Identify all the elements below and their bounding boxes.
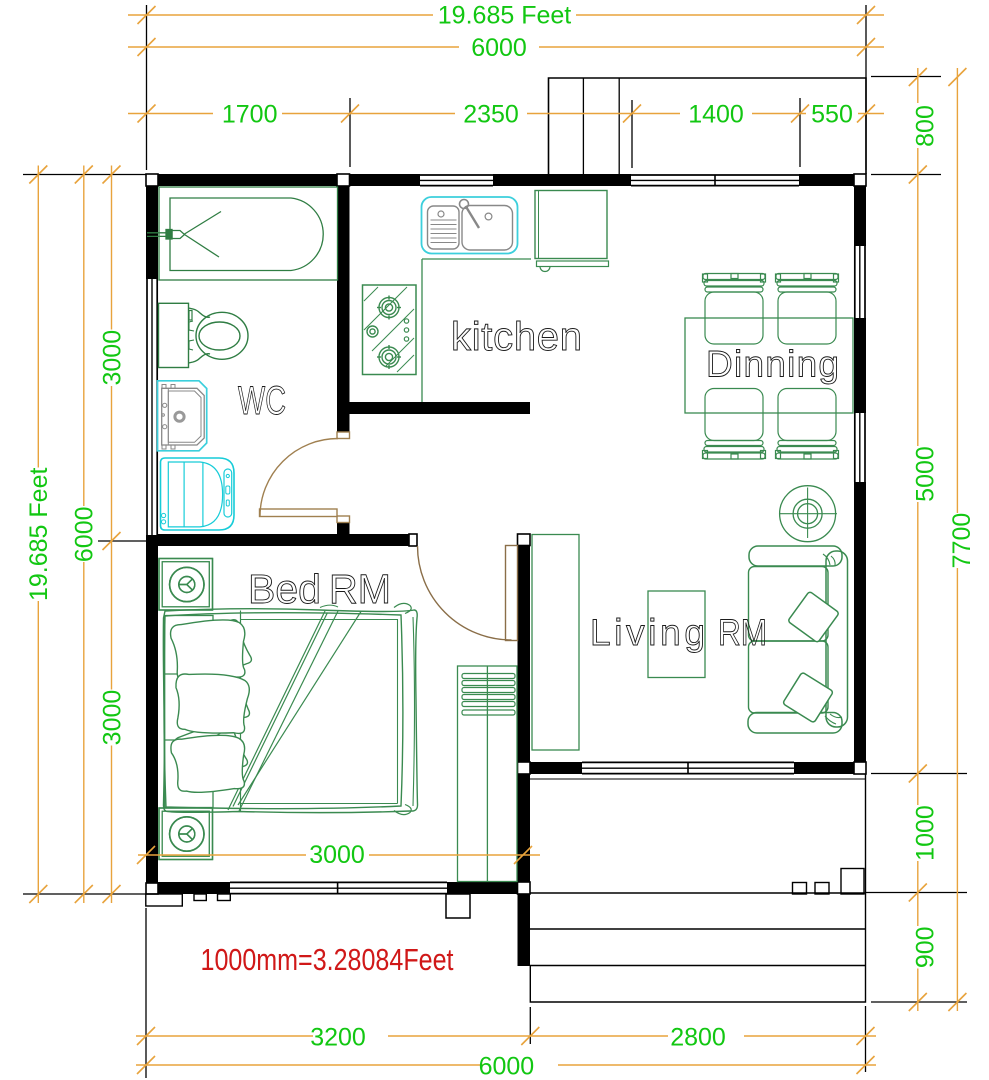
- svg-text:Dinning: Dinning: [706, 344, 839, 385]
- svg-text:2350: 2350: [463, 100, 519, 128]
- svg-text:3200: 3200: [310, 1023, 366, 1051]
- svg-text:3000: 3000: [309, 841, 365, 869]
- svg-text:3000: 3000: [98, 690, 126, 746]
- svg-text:3000: 3000: [98, 330, 126, 386]
- svg-text:1700: 1700: [222, 100, 278, 128]
- svg-text:RM: RM: [718, 612, 767, 653]
- svg-text:2800: 2800: [670, 1023, 726, 1051]
- svg-text:19.685 Feet: 19.685 Feet: [25, 468, 53, 601]
- svg-text:RM: RM: [329, 566, 391, 612]
- svg-text:1400: 1400: [688, 100, 744, 128]
- svg-text:Bed: Bed: [248, 566, 321, 612]
- svg-text:6000: 6000: [71, 506, 99, 562]
- svg-text:19.685 Feet: 19.685 Feet: [438, 2, 571, 30]
- svg-text:5000: 5000: [911, 446, 939, 502]
- svg-text:7700: 7700: [948, 513, 976, 569]
- svg-text:Living: Living: [590, 612, 705, 653]
- svg-text:1000: 1000: [911, 805, 939, 861]
- svg-text:6000: 6000: [479, 1053, 535, 1080]
- svg-text:1000mm=3.28084Feet: 1000mm=3.28084Feet: [201, 942, 454, 977]
- svg-text:WC: WC: [238, 379, 286, 423]
- svg-text:kitchen: kitchen: [451, 315, 582, 359]
- svg-text:800: 800: [911, 105, 939, 147]
- svg-text:900: 900: [911, 926, 939, 968]
- svg-text:6000: 6000: [471, 34, 527, 62]
- svg-text:550: 550: [811, 100, 853, 128]
